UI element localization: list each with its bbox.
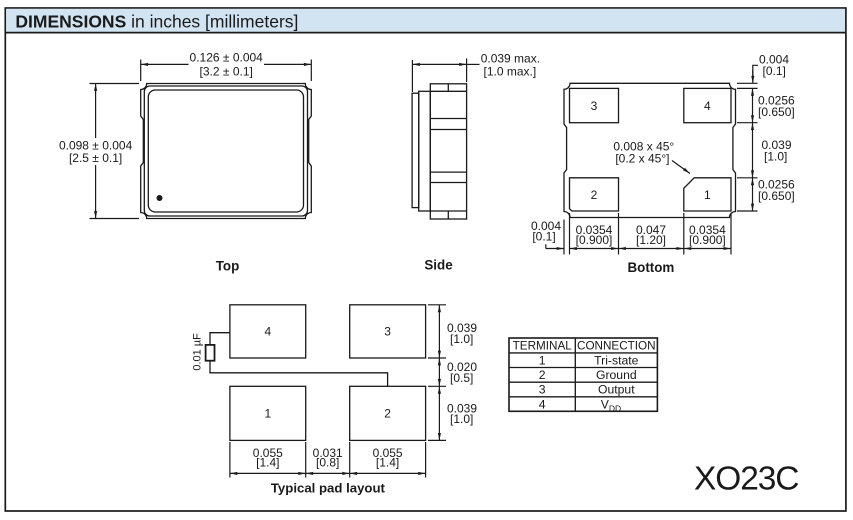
svg-text:2: 2 (384, 407, 391, 421)
svg-text:[2.5 ± 0.1]: [2.5 ± 0.1] (69, 151, 122, 165)
svg-text:0.039 max.: 0.039 max. (481, 52, 540, 66)
svg-text:Bottom: Bottom (627, 260, 674, 275)
svg-text:CONNECTION: CONNECTION (577, 340, 656, 353)
svg-text:[0.2 x 45°]: [0.2 x 45°] (615, 152, 669, 166)
svg-text:Output: Output (598, 383, 635, 397)
svg-text:4: 4 (704, 99, 711, 113)
svg-text:4: 4 (264, 325, 271, 339)
svg-text:4: 4 (539, 397, 546, 411)
svg-text:[0.900]: [0.900] (576, 233, 613, 247)
svg-text:DIMENSIONS in inches [millimet: DIMENSIONS in inches [millimeters] (15, 11, 298, 31)
svg-text:[1.4]: [1.4] (256, 455, 279, 469)
svg-text:[1.0]: [1.0] (764, 149, 787, 163)
svg-text:[1.0]: [1.0] (450, 412, 473, 426)
svg-text:[0.650]: [0.650] (758, 189, 795, 203)
svg-text:3: 3 (591, 99, 598, 113)
svg-text:1: 1 (704, 188, 711, 202)
svg-text:0.126 ± 0.004: 0.126 ± 0.004 (190, 51, 264, 65)
svg-text:Tri-state: Tri-state (594, 353, 638, 367)
svg-text:Ground: Ground (596, 368, 637, 382)
svg-text:3: 3 (539, 383, 546, 397)
svg-text:2: 2 (539, 368, 546, 382)
svg-text:XO23C: XO23C (694, 461, 798, 498)
svg-text:2: 2 (591, 188, 598, 202)
svg-text:[1.20]: [1.20] (636, 233, 666, 247)
svg-text:[1.4]: [1.4] (376, 455, 399, 469)
svg-text:TERMINAL: TERMINAL (513, 340, 573, 353)
svg-text:[0.5]: [0.5] (450, 371, 473, 385)
svg-text:Typical pad layout: Typical pad layout (271, 480, 386, 495)
svg-text:[3.2 ± 0.1]: [3.2 ± 0.1] (200, 65, 253, 79)
svg-text:[0.1]: [0.1] (532, 229, 555, 243)
svg-text:[1.0 max.]: [1.0 max.] (484, 65, 537, 79)
svg-text:[0.1]: [0.1] (763, 64, 786, 78)
svg-text:[1.0]: [1.0] (450, 332, 473, 346)
svg-text:[0.8]: [0.8] (316, 455, 339, 469)
svg-text:Side: Side (424, 258, 452, 273)
svg-text:1: 1 (539, 353, 546, 367)
svg-text:Top: Top (216, 259, 240, 274)
svg-text:3: 3 (384, 325, 391, 339)
svg-text:1: 1 (264, 407, 271, 421)
svg-text:[0.900]: [0.900] (689, 233, 726, 247)
svg-text:0.01 µF: 0.01 µF (192, 333, 204, 371)
svg-text:[0.650]: [0.650] (758, 105, 795, 119)
